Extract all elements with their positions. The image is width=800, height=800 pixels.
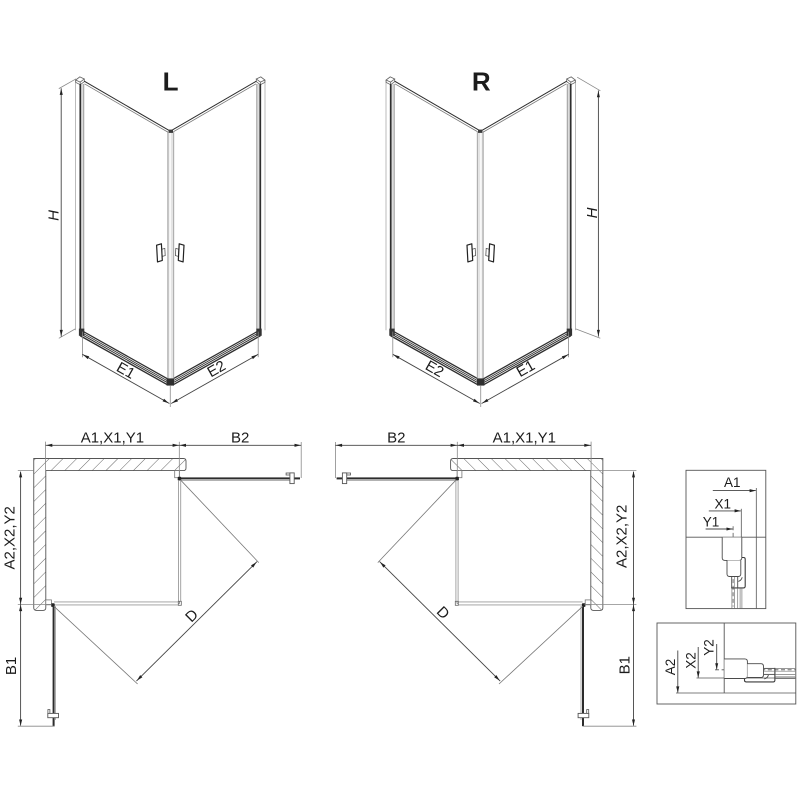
svg-text:H: H — [46, 210, 63, 221]
svg-text:L: L — [163, 67, 179, 97]
svg-text:R: R — [472, 67, 491, 97]
svg-text:A2,X2,Y2: A2,X2,Y2 — [1, 506, 18, 569]
svg-text:X2: X2 — [683, 652, 698, 669]
svg-text:H: H — [584, 207, 601, 218]
svg-text:X1: X1 — [715, 496, 732, 511]
svg-text:A2: A2 — [663, 659, 678, 676]
svg-text:A1,X1,Y1: A1,X1,Y1 — [81, 429, 144, 446]
svg-text:Y1: Y1 — [703, 514, 720, 529]
svg-text:A2,X2,Y2: A2,X2,Y2 — [613, 505, 630, 568]
svg-text:B1: B1 — [617, 656, 634, 674]
svg-text:Y2: Y2 — [702, 639, 717, 656]
svg-text:A1,X1,Y1: A1,X1,Y1 — [493, 429, 556, 446]
svg-text:A1: A1 — [724, 475, 741, 490]
svg-text:B2: B2 — [231, 429, 249, 446]
svg-text:B1: B1 — [3, 657, 20, 675]
svg-text:B2: B2 — [387, 429, 405, 446]
